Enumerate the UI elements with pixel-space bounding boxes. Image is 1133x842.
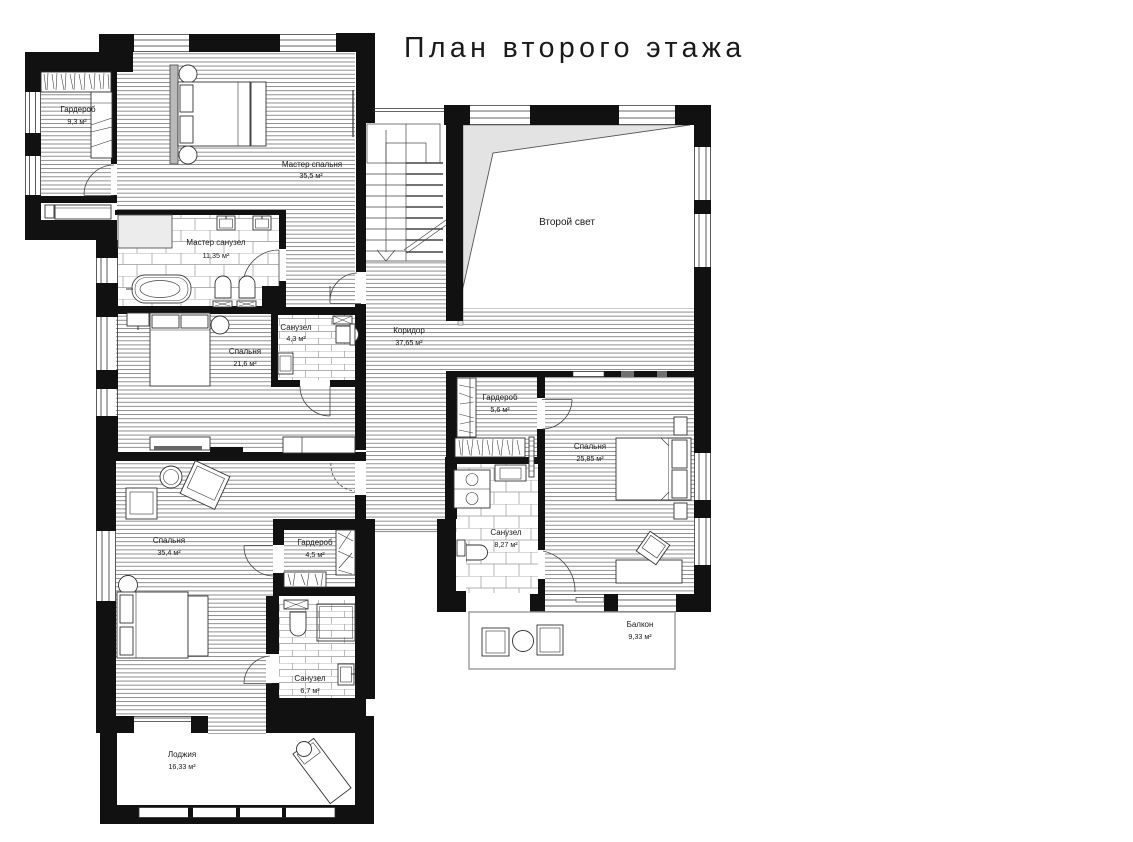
svg-text:35,4 м²: 35,4 м² (157, 548, 181, 557)
svg-text:План второго этажа: План второго этажа (404, 32, 746, 64)
svg-text:Спальня: Спальня (574, 442, 606, 451)
svg-text:Гардероб: Гардероб (482, 393, 518, 402)
svg-text:Второй свет: Второй свет (539, 217, 595, 228)
svg-text:11,35 м²: 11,35 м² (203, 251, 230, 260)
svg-text:Санузел: Санузел (490, 528, 521, 537)
svg-text:Спальня: Спальня (153, 536, 185, 545)
svg-text:21,6 м²: 21,6 м² (233, 359, 257, 368)
svg-text:35,5 м²: 35,5 м² (299, 171, 323, 180)
svg-text:37,65 м²: 37,65 м² (395, 338, 423, 347)
svg-text:Балкон: Балкон (627, 620, 654, 629)
svg-text:Лоджия: Лоджия (168, 750, 196, 759)
svg-text:Мастер спальня: Мастер спальня (282, 160, 342, 169)
svg-text:Спальня: Спальня (229, 347, 261, 356)
svg-text:Мастер санузел: Мастер санузел (186, 238, 246, 247)
svg-text:5,6 м²: 5,6 м² (490, 405, 510, 414)
svg-text:8,27 м²: 8,27 м² (494, 540, 518, 549)
svg-text:Санузел: Санузел (280, 323, 311, 332)
svg-text:9,3 м²: 9,3 м² (67, 117, 87, 126)
svg-text:16,33 м²: 16,33 м² (168, 762, 196, 771)
svg-text:4,3 м²: 4,3 м² (286, 334, 306, 343)
svg-text:Коридор: Коридор (393, 326, 425, 335)
svg-text:9,33 м²: 9,33 м² (628, 632, 652, 641)
svg-text:Санузел: Санузел (294, 674, 325, 683)
svg-text:4,5 м²: 4,5 м² (305, 550, 325, 559)
svg-text:Гардероб: Гардероб (60, 105, 96, 114)
svg-text:6,7 м²: 6,7 м² (300, 686, 320, 695)
svg-text:25,85 м²: 25,85 м² (576, 454, 604, 463)
svg-text:Гардероб: Гардероб (297, 538, 333, 547)
